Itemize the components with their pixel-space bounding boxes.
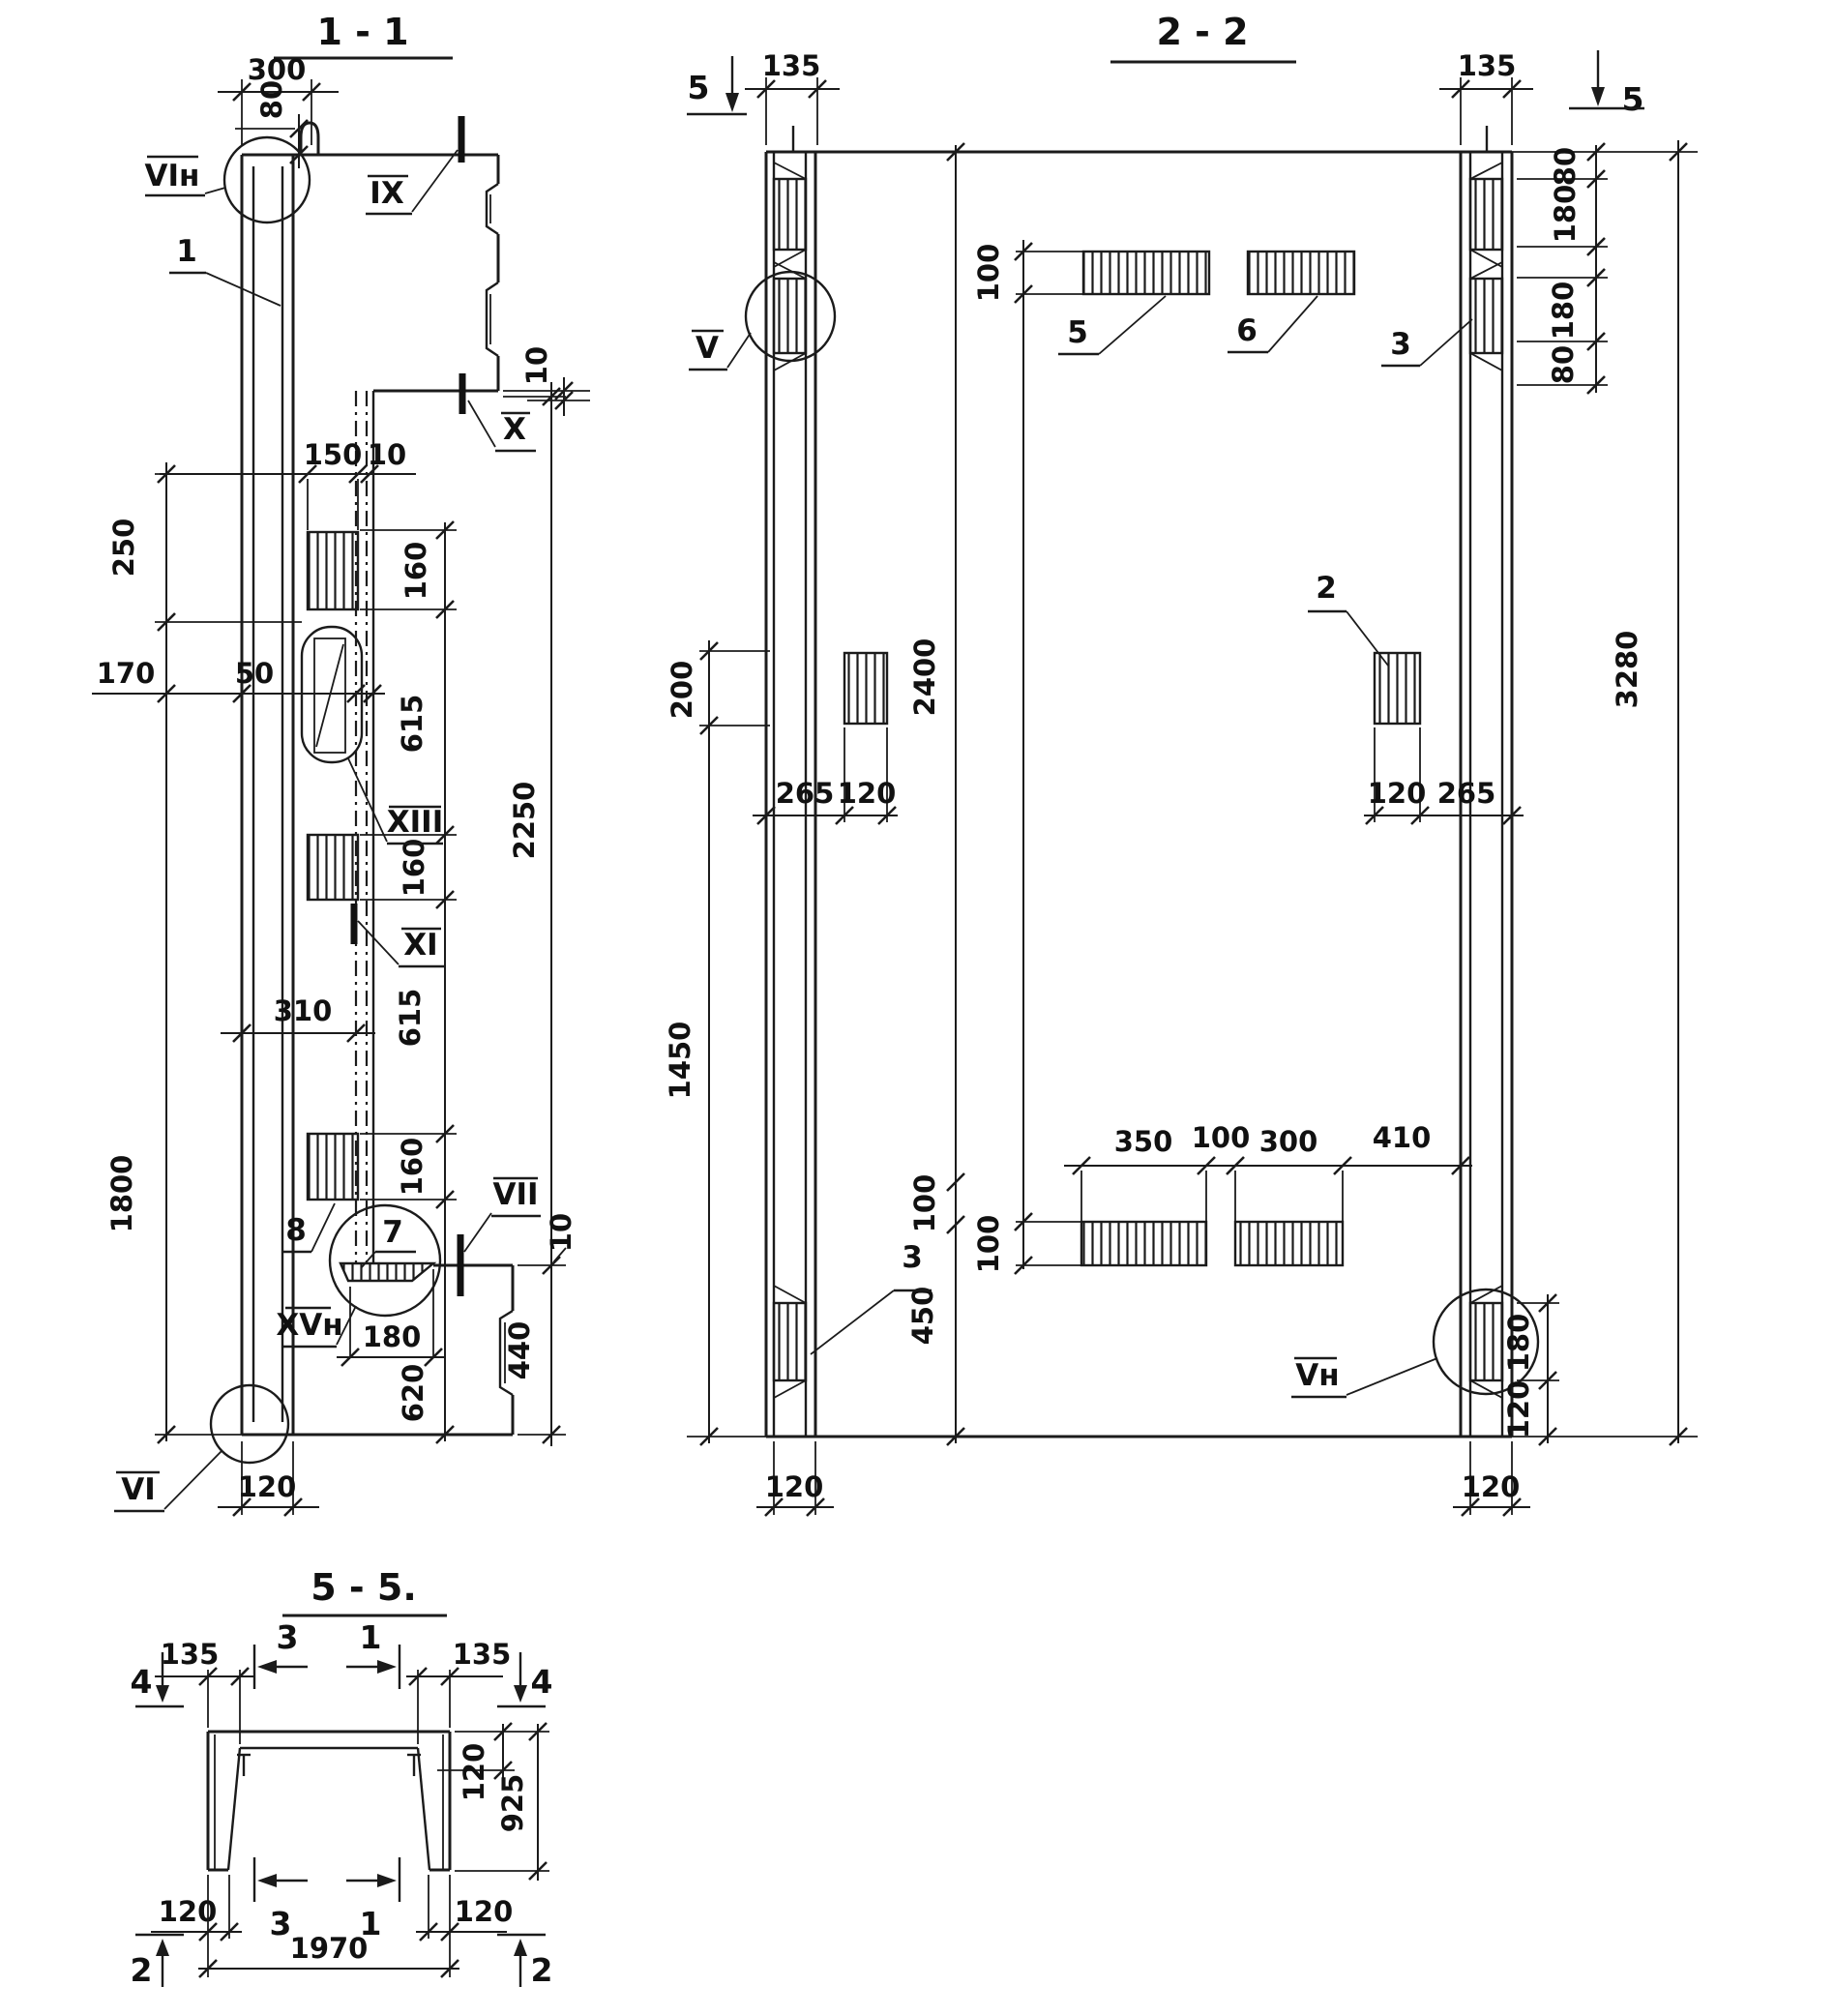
dim-135: 135 [161,1638,220,1671]
cut-marker-1-top: 1 [346,1618,400,1689]
label-1: 1 [169,234,281,306]
dim-2400: 2400 [908,638,941,717]
svg-text:1: 1 [360,1618,382,1656]
shear-key [1470,279,1502,353]
shear-key [774,179,806,250]
dim-100: 100 [1192,1121,1251,1154]
label-5: 5 [1058,296,1166,354]
dim-10: 10 [545,1213,577,1252]
svg-text:4: 4 [531,1663,553,1701]
cut-marker-3-bottom: 3 [254,1857,308,1942]
dim-10: 10 [520,346,553,385]
shear-key [844,653,887,724]
label-vin: VIн [145,157,225,195]
svg-text:4: 4 [131,1663,153,1701]
serrated-joint [340,1263,433,1281]
label-xiii: XIII [348,758,443,844]
svg-text:3: 3 [277,1618,299,1656]
dim-410: 410 [1373,1121,1432,1154]
label-7: 7 [362,1215,416,1267]
dim-440: 440 [503,1321,536,1380]
drawing-sheet: 1 - 1 [0,0,1835,2016]
shear-key [1470,179,1502,250]
dim-180: 180 [1502,1314,1535,1373]
label-vi: VI [114,1451,222,1511]
svg-text:X: X [503,412,526,447]
label-6: 6 [1228,296,1317,352]
shear-key [308,835,358,900]
dim-120: 120 [458,1743,490,1802]
dim-10: 10 [368,438,406,471]
dim-160: 160 [398,839,430,898]
dim-180: 180 [1549,185,1582,244]
dim-350: 350 [1114,1125,1173,1158]
dim-50: 50 [235,657,274,690]
section-1-1-title: 1 - 1 [316,11,408,53]
label-vn: Vн [1291,1358,1437,1397]
cut-marker-3-top: 3 [254,1618,308,1689]
shear-key-2 [1375,653,1420,724]
label-ix: IX [366,150,458,214]
dim-160: 160 [396,1138,429,1197]
svg-text:XI: XI [403,928,437,963]
svg-text:XIII: XIII [387,805,444,840]
svg-text:5: 5 [688,69,710,106]
section-2-2: 2 - 2 [664,11,1698,1516]
shear-key-5 [1083,252,1209,294]
dim-150: 150 [304,438,363,471]
dim-100: 100 [972,1215,1005,1274]
dim-160: 160 [400,542,432,601]
label-vii: VII [464,1177,541,1252]
keyway-slot [487,282,498,356]
label-2: 2 [1308,571,1388,666]
dim-1450: 1450 [664,1022,696,1100]
shear-key [1235,1222,1343,1265]
shear-key-6 [1248,252,1354,294]
section-2-2-title: 2 - 2 [1156,11,1248,53]
svg-text:3: 3 [1390,327,1411,362]
detail-circle-vi [211,1385,288,1463]
svg-text:5: 5 [1622,80,1644,118]
dim-135: 135 [1458,49,1517,82]
dim-80: 80 [255,80,288,119]
svg-text:VIн: VIн [145,159,200,193]
shear-key [1081,1222,1206,1265]
dim-200: 200 [666,661,698,720]
label-x: X [468,400,536,451]
dim-120: 120 [1462,1470,1521,1503]
detail-circle-vin [224,137,310,222]
dim-120: 120 [838,777,897,810]
dim-120: 120 [455,1895,514,1928]
dim-180: 180 [363,1320,422,1353]
dim-120: 120 [1368,777,1427,810]
label-xvn: XVн [276,1306,356,1347]
svg-text:7: 7 [382,1215,403,1250]
dim-265: 265 [1437,777,1496,810]
dim-120: 120 [1502,1380,1535,1439]
svg-text:VI: VI [121,1472,156,1507]
dim-1970: 1970 [290,1932,369,1965]
dim-135: 135 [453,1638,512,1671]
svg-text:3: 3 [902,1240,923,1275]
dim-100: 100 [908,1174,941,1233]
panel-reinforcement-drawing: 1 - 1 [0,0,1835,2016]
dim-250: 250 [107,519,140,578]
dim-120: 120 [765,1470,824,1503]
dim-80: 80 [1549,147,1582,186]
dim-120: 120 [238,1470,297,1503]
dim-615: 615 [396,695,429,754]
label-3-top: 3 [1381,319,1472,366]
section-5-5: 5 - 5. 3 1 4 [131,1566,553,1989]
section-5-5-title: 5 - 5. [311,1566,417,1609]
svg-text:8: 8 [285,1213,307,1248]
svg-text:3: 3 [270,1905,292,1942]
dim-180: 180 [1547,282,1580,341]
shear-key [1470,1303,1502,1380]
cut-marker-2-left: 2 [131,1935,184,1989]
cut-marker-5-right: 5 [1569,50,1644,118]
dim-80: 80 [1547,345,1580,384]
label-v: V [689,331,751,370]
dim-925: 925 [496,1774,529,1833]
dim-1800: 1800 [105,1155,138,1233]
shear-key [774,1303,806,1380]
svg-text:6: 6 [1236,313,1258,348]
svg-text:2: 2 [131,1951,153,1989]
dim-170: 170 [97,657,156,690]
cut-marker-2-right: 2 [497,1935,552,1989]
dim-265: 265 [776,777,835,810]
shear-key [308,1134,358,1200]
dim-100: 100 [972,244,1005,303]
dim-3280: 3280 [1611,631,1643,709]
label-8: 8 [282,1203,335,1252]
svg-text:2: 2 [1316,571,1337,606]
svg-text:2: 2 [531,1951,553,1989]
svg-text:1: 1 [176,234,197,269]
shear-key [774,279,806,353]
label-xi: XI [358,921,445,966]
svg-text:IX: IX [370,176,404,211]
dim-450: 450 [906,1287,939,1346]
svg-text:Vн: Vн [1295,1358,1339,1393]
dim-135: 135 [762,49,821,82]
dim-310: 310 [274,994,333,1027]
dim-620: 620 [397,1364,429,1423]
keyway-slot [487,184,498,234]
svg-text:XVн: XVн [276,1308,342,1343]
cut-marker-1-bottom: 1 [346,1857,400,1942]
svg-text:5: 5 [1067,315,1088,350]
shear-key [308,532,358,609]
svg-text:VII: VII [492,1177,538,1212]
cut-marker-5-left: 5 [687,56,747,114]
dim-2250: 2250 [508,782,541,860]
dim-300: 300 [1259,1125,1318,1158]
section-1-1: 1 - 1 [92,11,590,1516]
svg-text:V: V [696,331,719,366]
dim-615: 615 [394,989,427,1048]
